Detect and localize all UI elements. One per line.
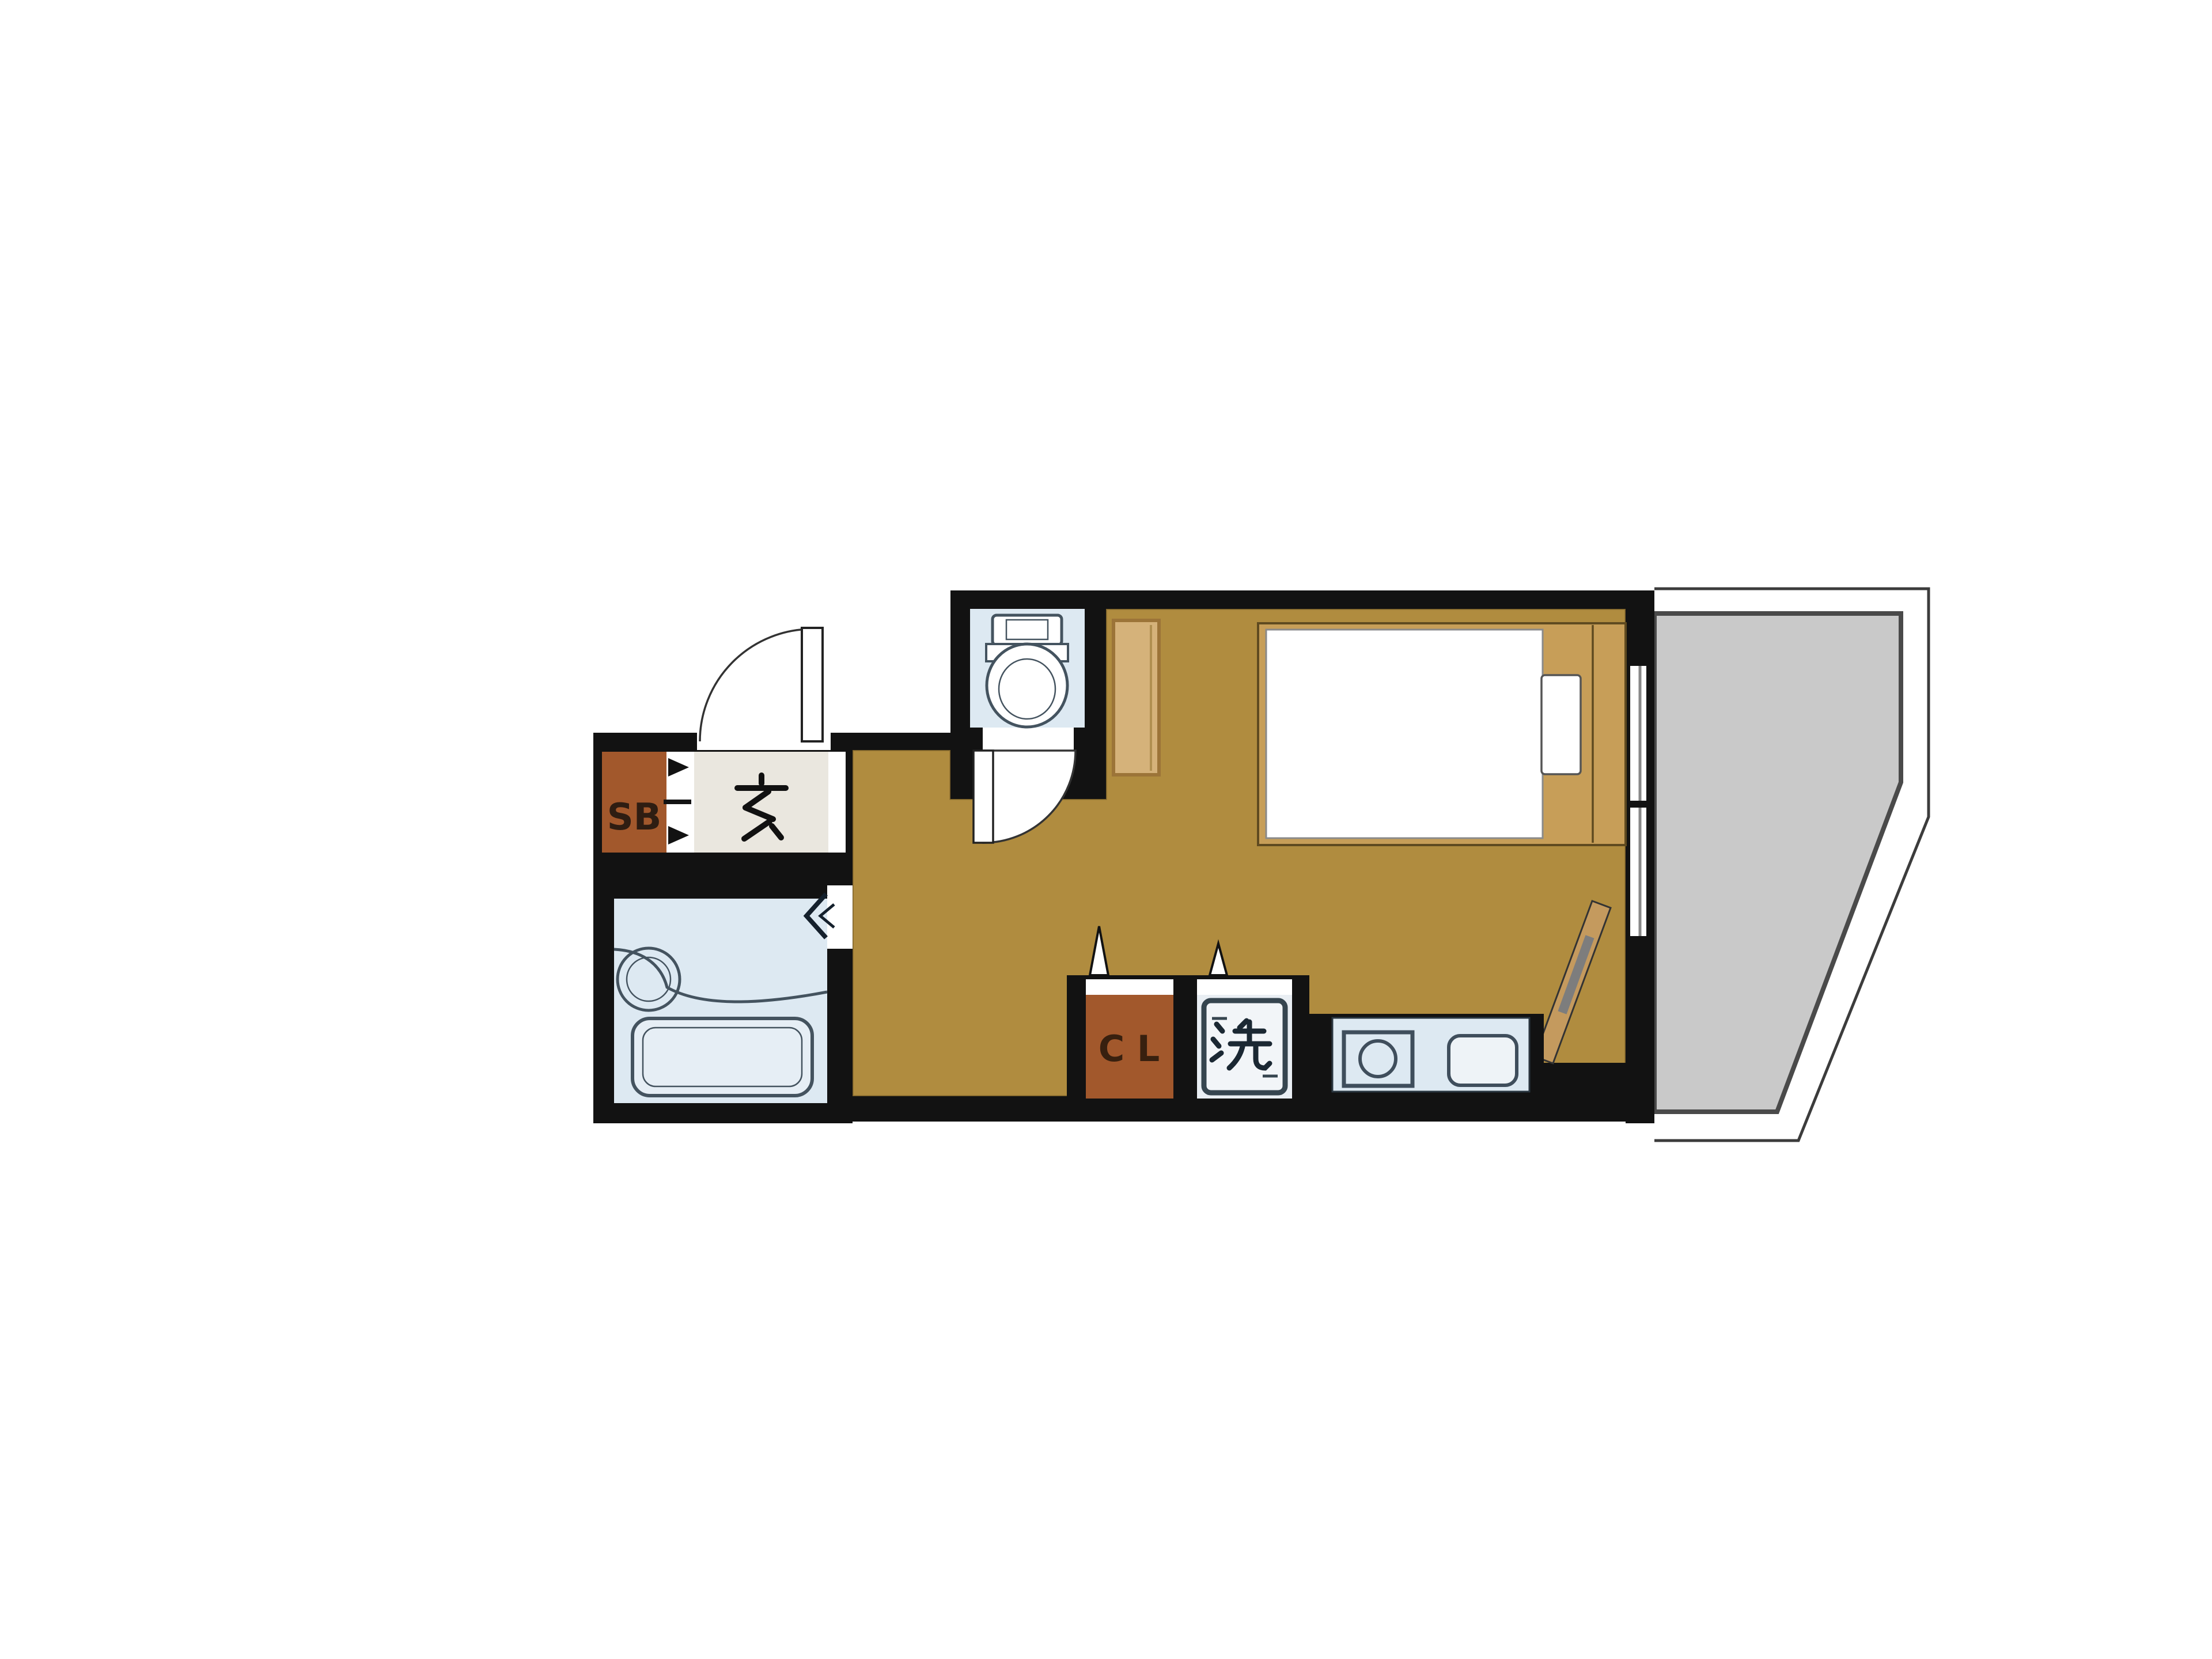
bottom-right-corner-wall [1529, 1063, 1654, 1122]
kitchen [1309, 1014, 1544, 1122]
bathtub [632, 1018, 812, 1096]
entry-door-swing-arc [700, 629, 812, 741]
floor-plan-page: SB C L [0, 0, 2212, 1659]
entry-door-leaf [802, 628, 823, 741]
kitchen-sink [1449, 1036, 1517, 1085]
genkan-floor [694, 752, 828, 853]
tall-cabinet [1113, 620, 1159, 775]
toilet-door-opening [983, 728, 1074, 751]
floor-plan-drawing: SB C L [0, 0, 2212, 1659]
genkan-step-threshold [828, 752, 846, 853]
closet-label: C L [1099, 1028, 1160, 1070]
closet-sliding-door [1086, 979, 1173, 995]
window-pane-upper [1630, 666, 1646, 801]
toilet-door-leaf [974, 751, 993, 843]
balcony-floor [1654, 613, 1901, 1112]
entrance-block: SB [593, 628, 853, 880]
shoe-box-label: SB [607, 796, 662, 839]
tall-cabinet-body [1113, 620, 1159, 775]
unit-bath [593, 880, 853, 1123]
bathroom-door-strip [827, 885, 853, 949]
laundry-sliding-door [1197, 979, 1292, 995]
mattress [1266, 630, 1543, 838]
bed [1258, 623, 1626, 845]
balcony [1654, 589, 1929, 1141]
window-pane-lower [1630, 808, 1646, 936]
pillow [1541, 675, 1581, 774]
